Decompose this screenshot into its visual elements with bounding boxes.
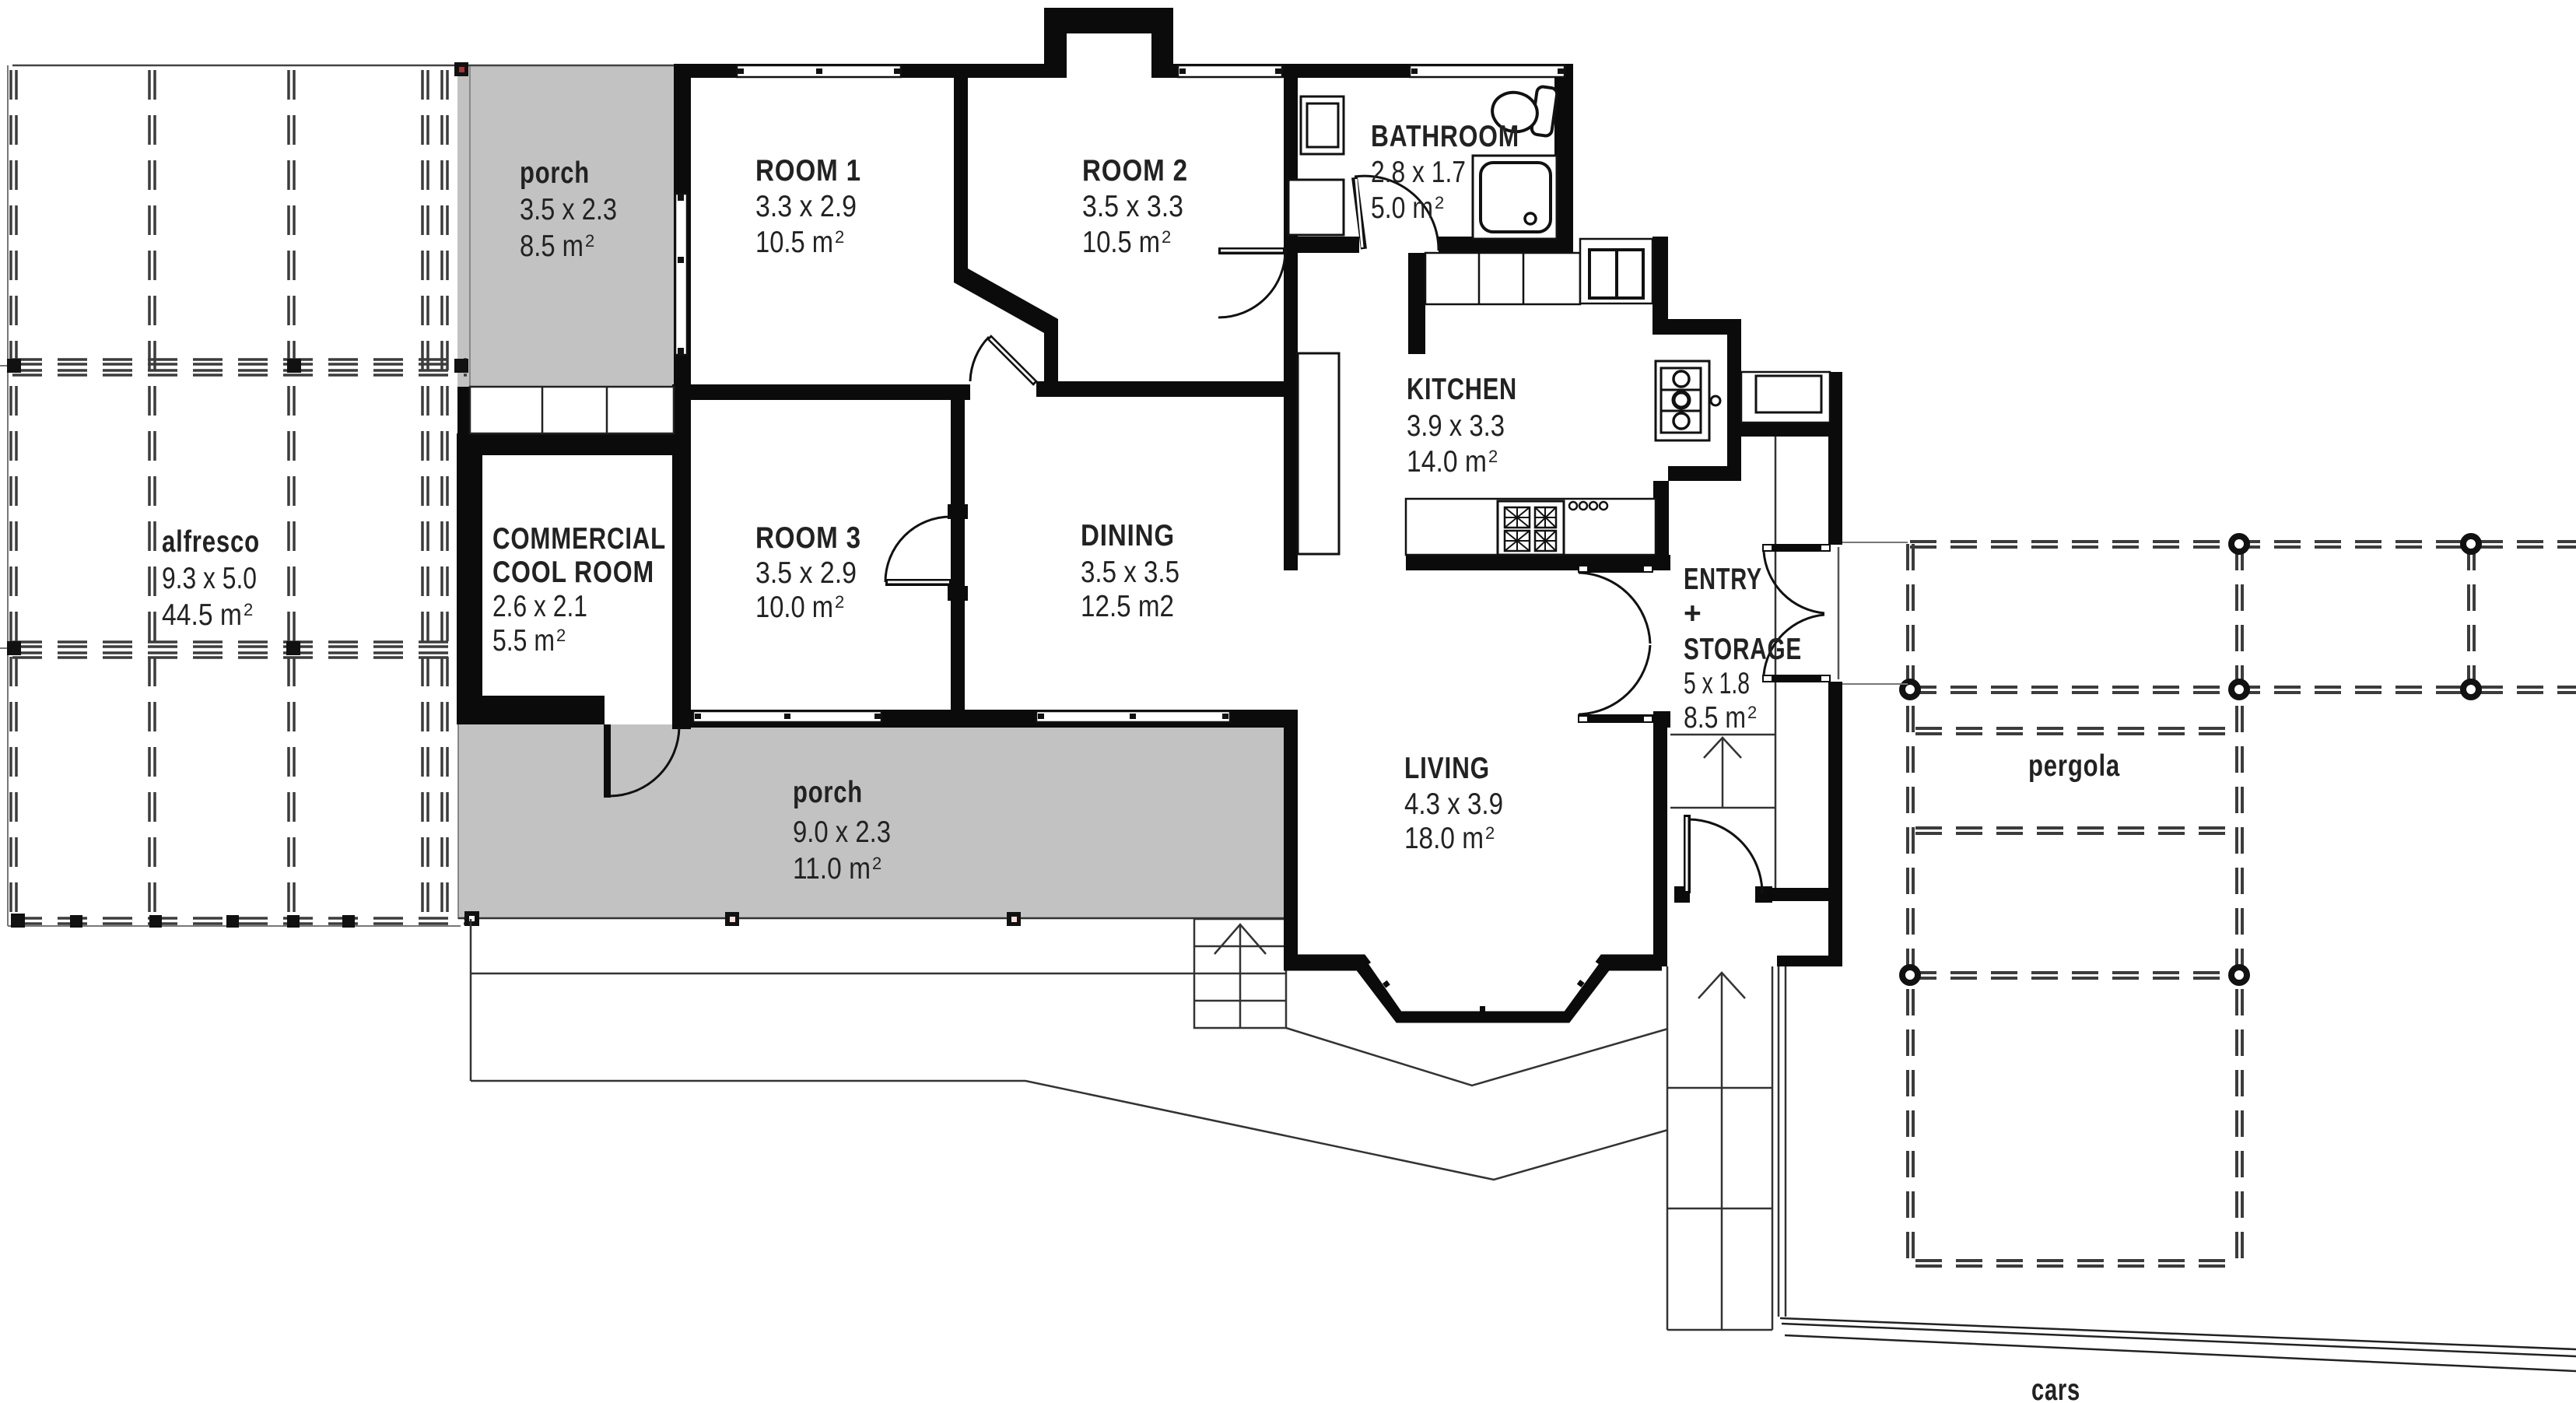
- svg-text:BATHROOM: BATHROOM: [1371, 120, 1519, 153]
- svg-text:12.5 m2: 12.5 m2: [1081, 590, 1174, 623]
- svg-text:ROOM 3: ROOM 3: [755, 521, 861, 555]
- svg-text:18.0 m: 18.0 m: [1404, 822, 1484, 855]
- svg-text:8.5 m: 8.5 m: [520, 230, 584, 263]
- svg-text:3.5 x 2.9: 3.5 x 2.9: [755, 556, 857, 590]
- svg-text:porch: porch: [793, 776, 863, 809]
- svg-text:11.0 m: 11.0 m: [793, 852, 871, 886]
- svg-text:9.0 x 2.3: 9.0 x 2.3: [793, 815, 891, 849]
- svg-text:3.5 x 2.3: 3.5 x 2.3: [520, 193, 617, 226]
- svg-text:3.5 x 3.5: 3.5 x 3.5: [1081, 556, 1179, 589]
- svg-text:5.0 m: 5.0 m: [1371, 191, 1433, 225]
- svg-text:2: 2: [1488, 447, 1498, 466]
- svg-text:2.8 x 1.7: 2.8 x 1.7: [1371, 156, 1466, 189]
- svg-text:3.3 x 2.9: 3.3 x 2.9: [755, 190, 857, 223]
- svg-text:2: 2: [835, 227, 844, 247]
- svg-text:8.5 m: 8.5 m: [1684, 701, 1746, 735]
- svg-text:ROOM 2: ROOM 2: [1082, 154, 1188, 188]
- svg-text:10.5 m: 10.5 m: [1082, 226, 1160, 259]
- svg-text:pergola: pergola: [2028, 749, 2120, 783]
- svg-text:9.3 x 5.0: 9.3 x 5.0: [162, 562, 257, 595]
- svg-text:5 x 1.8: 5 x 1.8: [1684, 667, 1750, 700]
- svg-text:3.9 x 3.3: 3.9 x 3.3: [1407, 409, 1505, 443]
- svg-text:2: 2: [556, 626, 566, 645]
- svg-text:COMMERCIAL: COMMERCIAL: [492, 522, 666, 556]
- svg-text:porch: porch: [520, 156, 590, 190]
- svg-text:ROOM 1: ROOM 1: [755, 154, 861, 188]
- svg-text:2: 2: [835, 592, 844, 612]
- svg-text:2: 2: [1435, 193, 1444, 212]
- svg-text:DINING: DINING: [1081, 519, 1175, 552]
- svg-text:STORAGE: STORAGE: [1684, 633, 1802, 666]
- svg-text:alfresco: alfresco: [162, 525, 260, 559]
- svg-text:2: 2: [1747, 703, 1757, 722]
- svg-text:2: 2: [244, 600, 253, 619]
- svg-text:ENTRY: ENTRY: [1684, 563, 1762, 596]
- svg-text:44.5 m: 44.5 m: [162, 598, 242, 632]
- svg-text:2: 2: [1162, 227, 1171, 247]
- svg-text:LIVING: LIVING: [1404, 752, 1490, 785]
- svg-text:2: 2: [1485, 823, 1495, 843]
- svg-text:10.0 m: 10.0 m: [755, 591, 833, 624]
- svg-text:4.3 x 3.9: 4.3 x 3.9: [1404, 787, 1503, 821]
- svg-text:2.6 x 2.1: 2.6 x 2.1: [492, 590, 587, 623]
- svg-text:+: +: [1684, 597, 1702, 630]
- svg-text:2: 2: [585, 231, 594, 251]
- svg-text:14.0 m: 14.0 m: [1407, 445, 1487, 479]
- svg-text:10.5 m: 10.5 m: [755, 226, 833, 259]
- svg-text:KITCHEN: KITCHEN: [1407, 373, 1517, 406]
- svg-text:3.5 x 3.3: 3.5 x 3.3: [1082, 190, 1183, 223]
- svg-text:COOL ROOM: COOL ROOM: [492, 556, 654, 589]
- svg-text:cars: cars: [2031, 1373, 2080, 1403]
- svg-text:5.5 m: 5.5 m: [492, 624, 555, 658]
- svg-text:2: 2: [872, 854, 881, 873]
